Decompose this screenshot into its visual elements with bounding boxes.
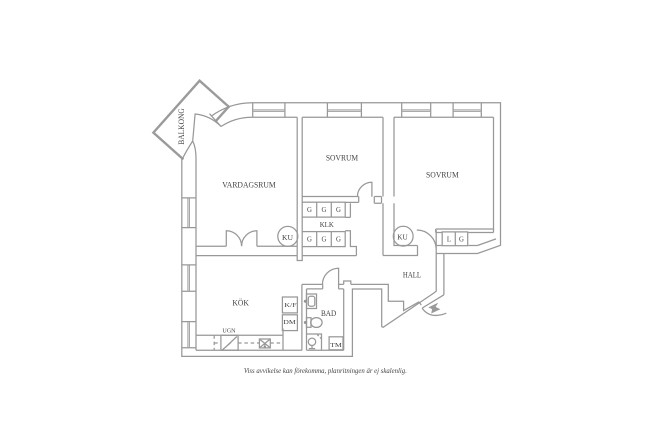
svg-text:KÖK: KÖK	[232, 297, 249, 307]
svg-text:BALKONG: BALKONG	[177, 108, 186, 145]
svg-text:KLK: KLK	[320, 221, 334, 229]
svg-text:HALL: HALL	[403, 270, 421, 280]
svg-text:G: G	[459, 236, 464, 243]
svg-text:KU: KU	[282, 234, 293, 242]
svg-text:BAD: BAD	[321, 308, 336, 318]
svg-text:SOVRUM: SOVRUM	[326, 153, 359, 163]
svg-text:G: G	[336, 207, 341, 214]
svg-text:VARDAGSRUM: VARDAGSRUM	[222, 180, 276, 190]
svg-text:G: G	[322, 207, 327, 214]
svg-text:G: G	[307, 237, 312, 244]
svg-text:L: L	[447, 236, 451, 243]
svg-text:G: G	[322, 237, 327, 244]
svg-text:SOVRUM: SOVRUM	[426, 169, 459, 179]
svg-text:G: G	[307, 207, 312, 214]
svg-text:DM: DM	[283, 319, 296, 326]
svg-text:KU: KU	[397, 234, 408, 242]
svg-text:TM: TM	[330, 342, 342, 349]
svg-text:G: G	[336, 237, 341, 244]
svg-text:UGN: UGN	[222, 328, 236, 334]
svg-text:K/F: K/F	[284, 302, 296, 309]
svg-text:Viss avvikelse kan förekomma,: Viss avvikelse kan förekomma, planritnin…	[244, 366, 407, 375]
